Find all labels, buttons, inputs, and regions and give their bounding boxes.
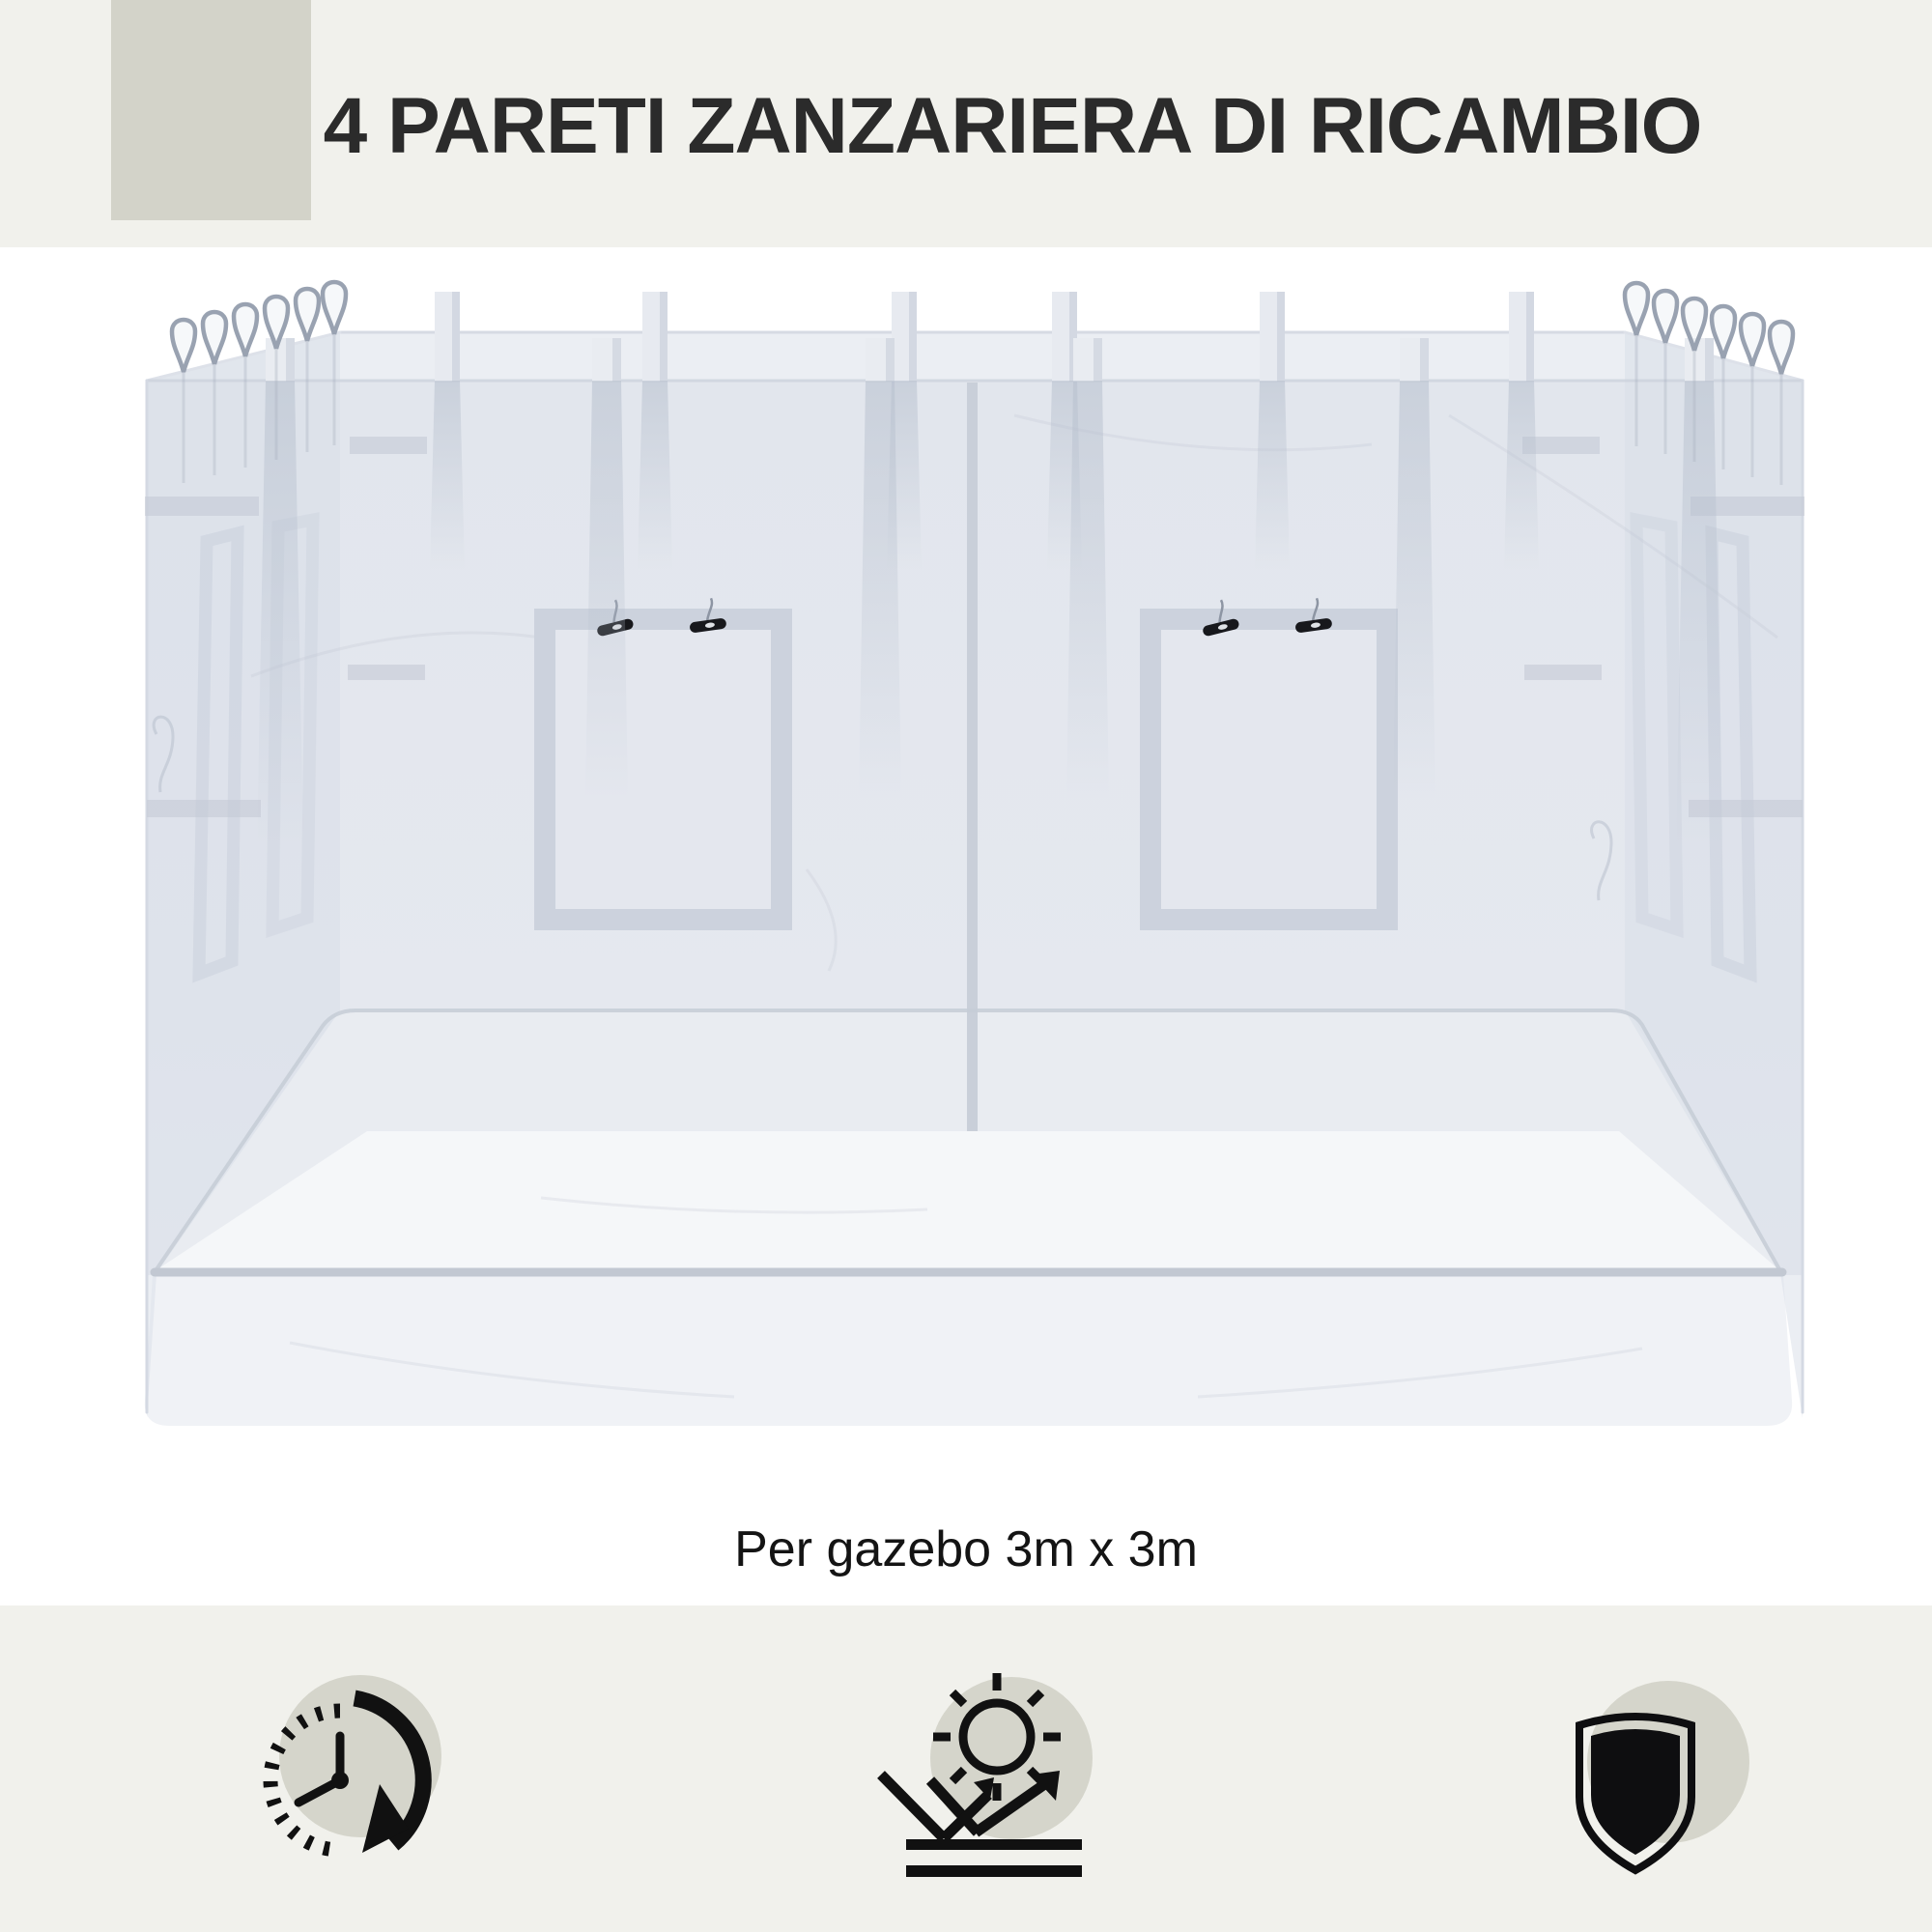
product-caption: Per gazebo 3m x 3m: [734, 1520, 1198, 1578]
net-top-opening: [147, 332, 1803, 381]
ground-sheet: [157, 1131, 1778, 1269]
uv-reflection-sun-icon: [860, 1633, 1159, 1903]
center-seam: [967, 383, 978, 1131]
clock-timer-icon: [203, 1642, 493, 1903]
shield-icon: [1536, 1642, 1806, 1893]
net-skirt: [145, 1275, 1792, 1426]
net-enclosure: [145, 282, 1804, 1426]
